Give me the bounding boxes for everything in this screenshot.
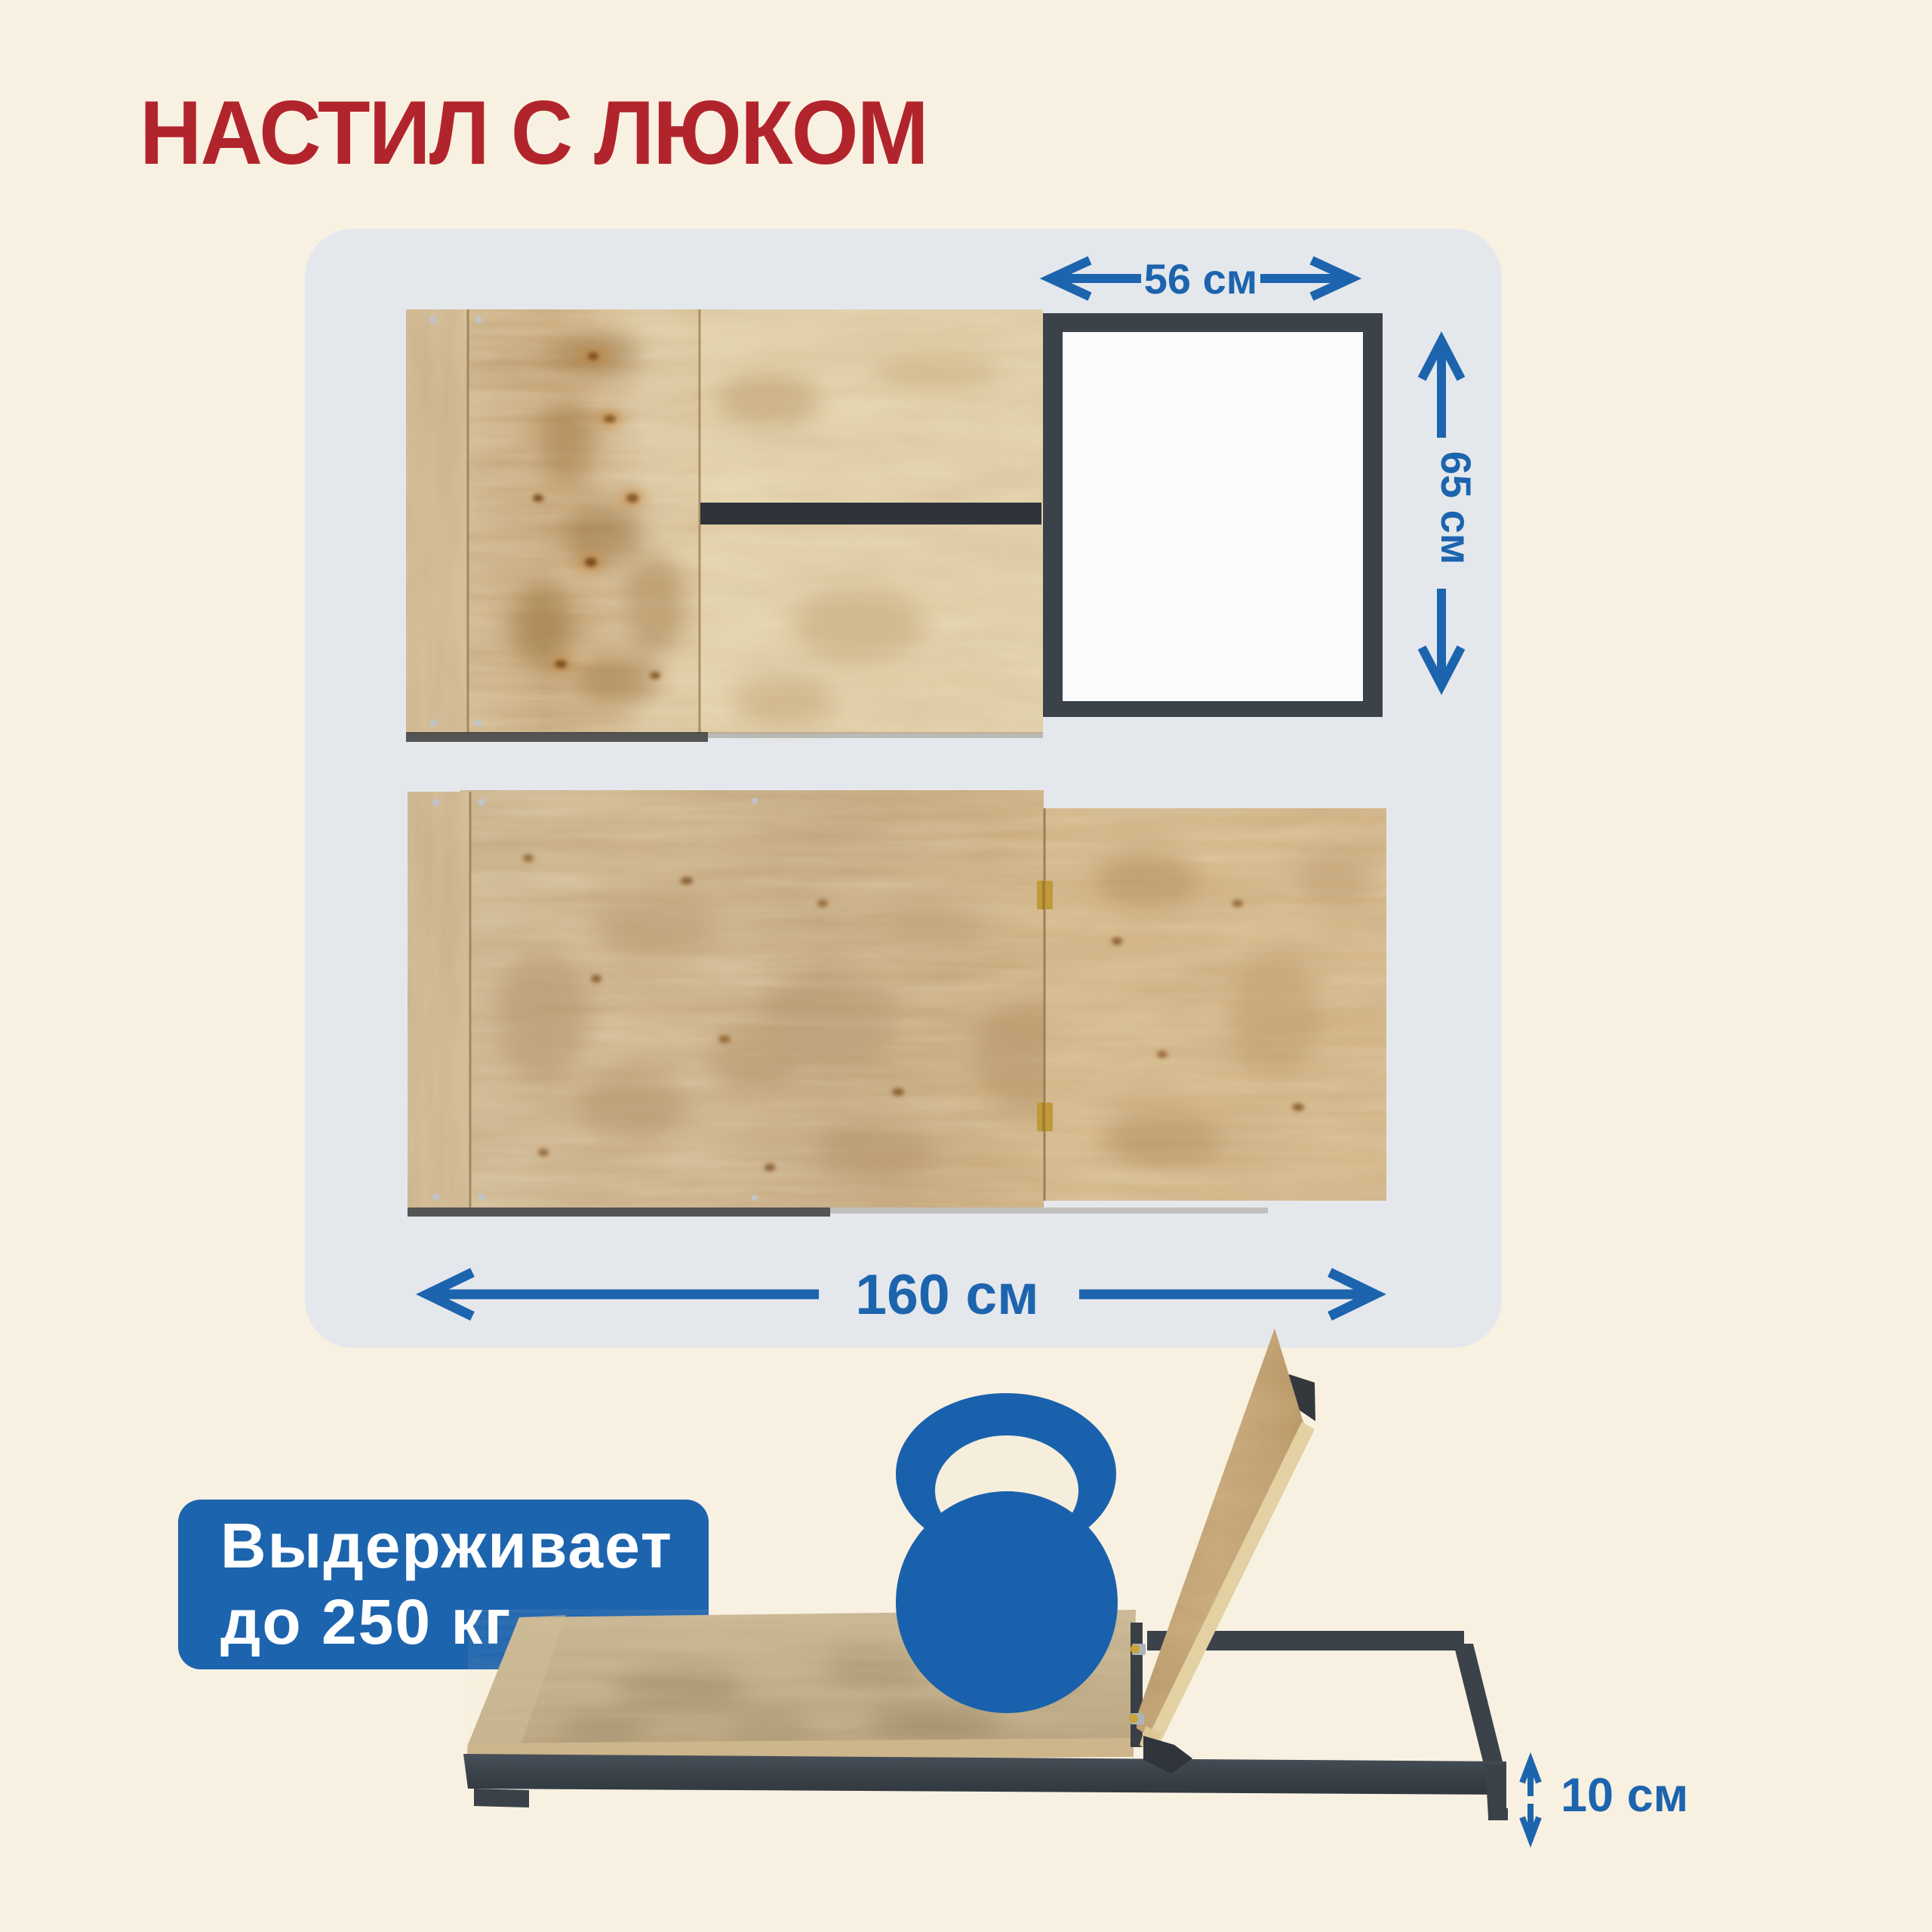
svg-text:65 см: 65 см xyxy=(1432,451,1480,565)
svg-text:10 см: 10 см xyxy=(1561,1769,1688,1822)
svg-text:56 см: 56 см xyxy=(1144,255,1257,303)
svg-text:160 см: 160 см xyxy=(855,1263,1038,1326)
